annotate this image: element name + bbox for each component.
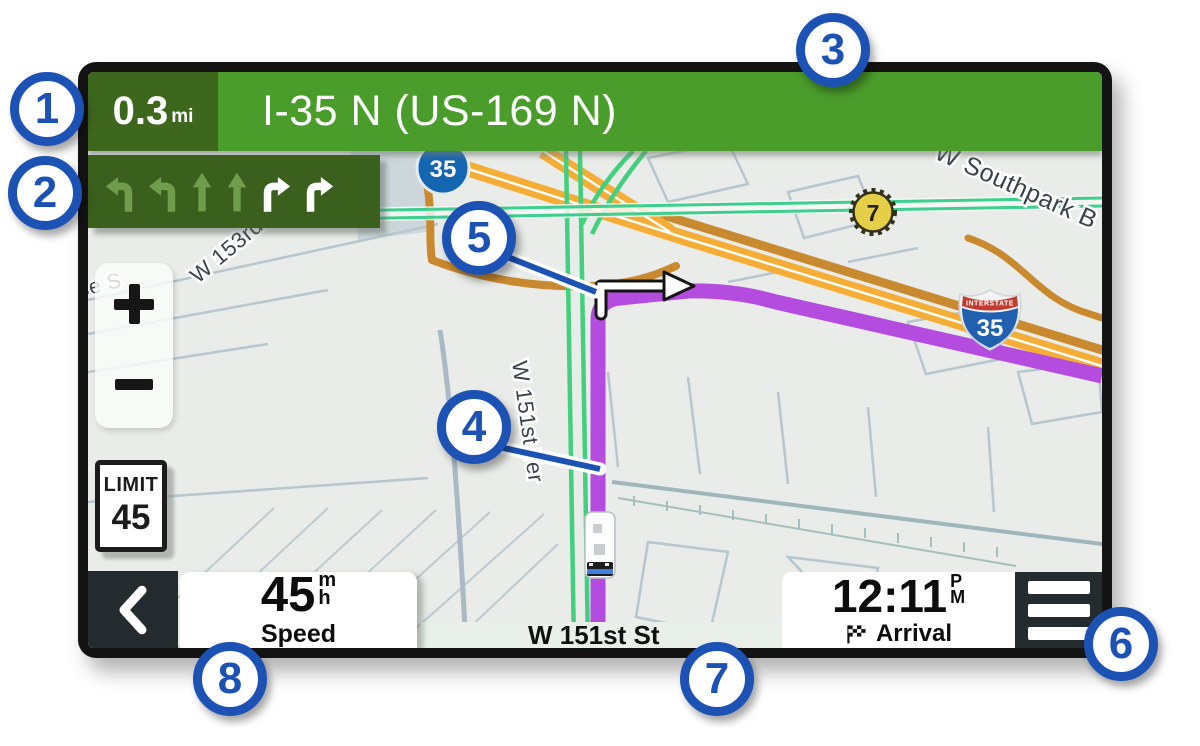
zoom-controls <box>95 263 173 428</box>
callout-6: 6 <box>1084 607 1158 681</box>
distance-value: 0.3 <box>113 89 169 134</box>
lane-guidance-panel <box>88 155 380 228</box>
lane-straight-icon <box>190 169 214 215</box>
lane-turn-right-active-icon <box>303 169 335 215</box>
lane-turn-left-icon <box>147 169 179 215</box>
callout-3: 3 <box>796 13 870 87</box>
callout-number: 5 <box>467 213 491 263</box>
navigation-bar[interactable]: 0.3 mi I-35 N (US-169 N) <box>88 72 1102 151</box>
gps-device-frame: 35 7 INTERSTATE 35 W Southpark B W 153rd… <box>78 62 1112 658</box>
arrival-label: Arrival <box>876 620 952 648</box>
distance-unit: mi <box>171 106 193 128</box>
interstate-shield-number: 35 <box>977 315 1004 342</box>
checkered-flag-icon <box>845 622 869 646</box>
chevron-left-icon <box>115 582 151 638</box>
zoom-in-icon <box>114 284 154 324</box>
callout-7: 7 <box>680 642 754 716</box>
callout-number: 4 <box>462 402 486 452</box>
next-turn-distance: 0.3 mi <box>88 72 218 151</box>
callout-number: 8 <box>218 654 242 704</box>
interstate-shield-header: INTERSTATE <box>966 301 1014 308</box>
instruction-bar[interactable]: I-35 N (US-169 N) <box>218 72 1102 151</box>
callout-number: 2 <box>33 168 57 218</box>
arrival-time: 12:11 <box>832 573 947 619</box>
zoom-out-button[interactable] <box>95 349 173 419</box>
route-7-badge: 7 <box>851 190 895 234</box>
callout-1: 1 <box>10 72 84 146</box>
callout-number: 6 <box>1109 619 1133 669</box>
callout-2: 2 <box>8 156 82 230</box>
callout-4: 4 <box>437 390 511 464</box>
navigation-screen: 35 7 INTERSTATE 35 W Southpark B W 153rd… <box>88 72 1102 648</box>
speed-widget[interactable]: 45 m h Speed <box>180 572 417 648</box>
callout-number: 3 <box>821 25 845 75</box>
hamburger-menu-icon <box>1028 627 1090 640</box>
hamburger-menu-icon <box>1028 604 1090 617</box>
zoom-in-button[interactable] <box>95 269 173 339</box>
speed-limit-label: LIMIT <box>104 474 159 497</box>
callout-8: 8 <box>193 642 267 716</box>
highway-circle-number: 35 <box>430 156 457 183</box>
callout-number: 1 <box>35 84 59 134</box>
arrival-widget[interactable]: 12:11 P M Arrival <box>782 572 1015 648</box>
callout-5: 5 <box>442 201 516 275</box>
current-street-name: W 151st St <box>528 620 660 648</box>
callout-number: 7 <box>705 654 729 704</box>
speed-value: 45 <box>261 571 316 620</box>
lane-straight-icon <box>225 169 249 215</box>
speed-label: Speed <box>261 620 336 648</box>
vehicle-marker <box>585 512 615 578</box>
arrival-meridiem-bottom: M <box>950 589 965 606</box>
lane-turn-right-active-icon <box>260 169 292 215</box>
hamburger-menu-icon <box>1028 581 1090 594</box>
speed-unit-bottom: h <box>318 589 336 607</box>
lane-turn-left-icon <box>104 169 136 215</box>
route-7-number: 7 <box>867 200 880 226</box>
instruction-text: I-35 N (US-169 N) <box>262 87 617 136</box>
speed-limit-sign: LIMIT 45 <box>95 460 167 552</box>
speed-limit-value: 45 <box>112 498 151 538</box>
zoom-out-icon <box>115 379 153 390</box>
back-button[interactable] <box>88 571 178 648</box>
